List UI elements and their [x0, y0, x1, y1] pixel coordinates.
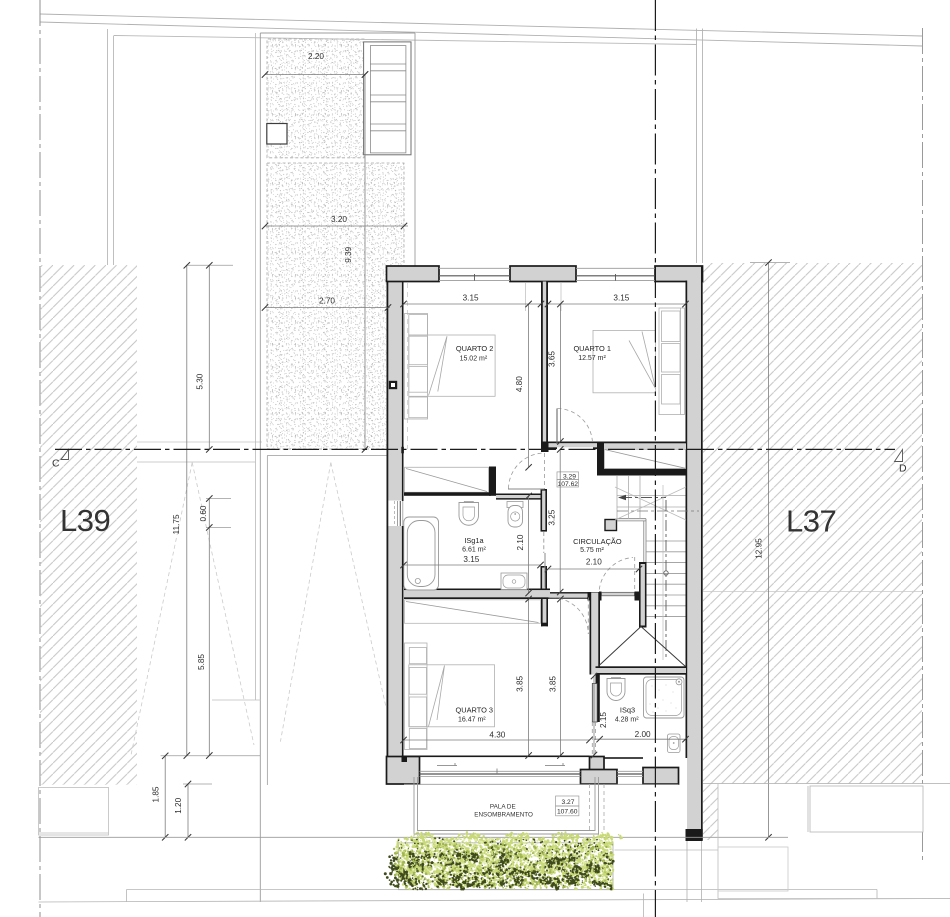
svg-text:4.28 m²: 4.28 m²: [615, 717, 639, 724]
svg-text:3.85: 3.85: [549, 676, 558, 692]
svg-text:5.30: 5.30: [196, 373, 205, 389]
svg-text:3.27: 3.27: [561, 799, 574, 806]
svg-text:1.85: 1.85: [151, 786, 160, 802]
svg-text:D: D: [899, 463, 907, 475]
svg-text:3.20: 3.20: [331, 215, 347, 224]
svg-text:ENSOMBRAMENTO: ENSOMBRAMENTO: [474, 812, 533, 819]
svg-text:3.25: 3.25: [547, 509, 556, 525]
svg-text:PALA DE: PALA DE: [490, 804, 516, 811]
svg-text:QUARTO 3: QUARTO 3: [456, 706, 494, 715]
svg-text:2.00: 2.00: [635, 730, 651, 739]
svg-text:2.10: 2.10: [516, 534, 525, 550]
svg-text:ISq3: ISq3: [620, 706, 635, 715]
svg-text:12.95: 12.95: [755, 538, 764, 559]
svg-text:107.62: 107.62: [558, 481, 579, 488]
svg-text:L39: L39: [60, 503, 110, 538]
svg-text:5.75 m²: 5.75 m²: [580, 547, 604, 554]
svg-text:3.15: 3.15: [463, 555, 479, 564]
svg-text:2.10: 2.10: [586, 558, 602, 567]
svg-text:3.29: 3.29: [563, 473, 576, 480]
svg-text:3.85: 3.85: [516, 675, 525, 691]
svg-text:2.20: 2.20: [308, 52, 324, 61]
svg-text:5.85: 5.85: [197, 654, 206, 670]
svg-text:2.15: 2.15: [599, 712, 608, 728]
svg-text:11.75: 11.75: [172, 514, 181, 534]
svg-text:4.80: 4.80: [515, 376, 524, 392]
svg-text:2.70: 2.70: [319, 297, 335, 306]
svg-text:C: C: [52, 458, 60, 470]
svg-text:15.02 m²: 15.02 m²: [460, 356, 488, 363]
svg-text:9.39: 9.39: [344, 246, 353, 262]
svg-text:3.15: 3.15: [613, 293, 629, 302]
svg-text:107.60: 107.60: [557, 809, 578, 816]
svg-text:CIRCULAÇÃO: CIRCULAÇÃO: [573, 537, 622, 546]
svg-text:L37: L37: [786, 504, 836, 539]
svg-text:0.60: 0.60: [199, 505, 208, 521]
svg-text:12.57 m²: 12.57 m²: [578, 355, 606, 362]
svg-text:6.61 m²: 6.61 m²: [462, 547, 486, 554]
svg-text:3.65: 3.65: [548, 351, 557, 367]
svg-text:16.47 m²: 16.47 m²: [458, 717, 486, 724]
svg-text:1.20: 1.20: [174, 797, 183, 813]
svg-text:QUARTO 2: QUARTO 2: [456, 344, 494, 353]
svg-text:3.15: 3.15: [463, 293, 479, 302]
svg-text:4.30: 4.30: [489, 731, 505, 740]
svg-text:QUARTO 1: QUARTO 1: [573, 344, 611, 353]
svg-text:ISg1a: ISg1a: [464, 536, 484, 545]
